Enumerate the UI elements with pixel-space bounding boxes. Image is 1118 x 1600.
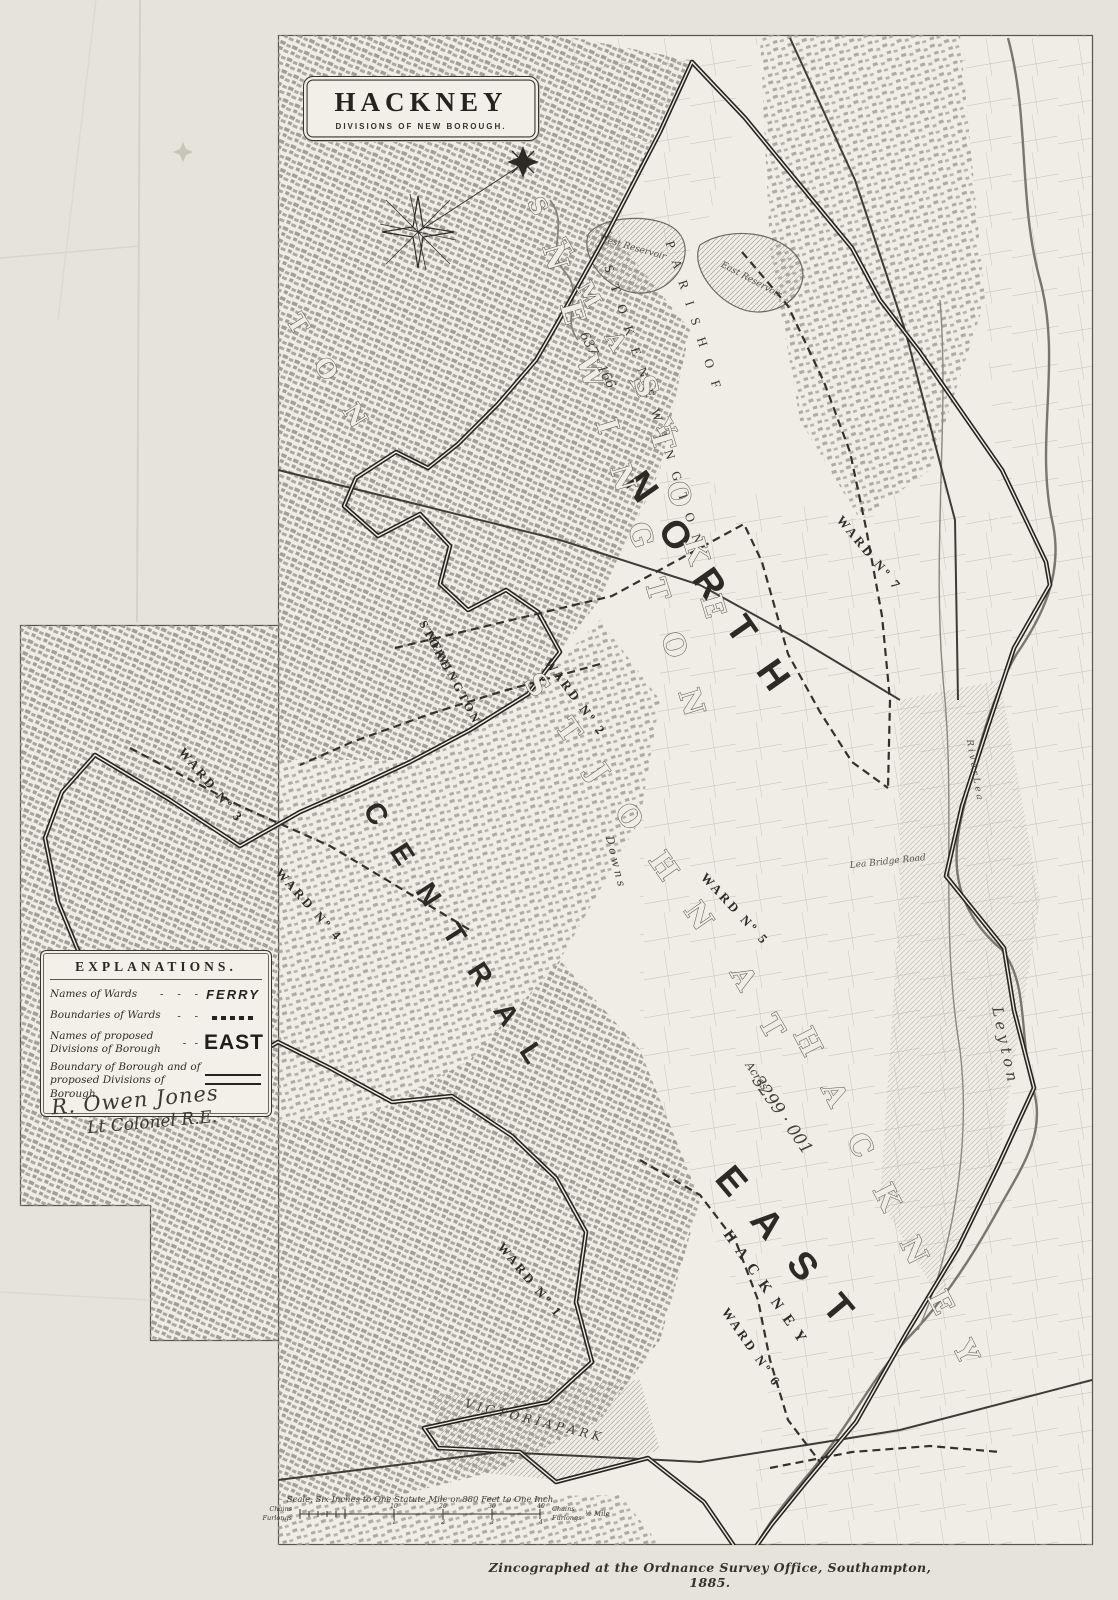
scale-bar-text: 2 — [440, 1519, 445, 1526]
map-title: HACKNEY — [312, 87, 530, 118]
dashed-line-sample — [212, 1016, 254, 1020]
imprint-line: Zincographed at the Ordnance Survey Offi… — [480, 1560, 940, 1590]
ward-name-sample: FERRY — [204, 987, 262, 1002]
scale-bar-text: ½ Mile — [585, 1510, 610, 1518]
legend-dots: - - - — [160, 989, 201, 1000]
legend-row-ward-names: Names of Wards - - - FERRY — [50, 987, 262, 1002]
north-star-icon — [509, 148, 537, 176]
title-cartouche: HACKNEY DIVISIONS OF NEW BOROUGH. — [303, 76, 539, 141]
scale-bar-text: 20 — [438, 1503, 447, 1510]
scale-bar-text: 10 — [390, 1503, 398, 1510]
legend-dots: - - — [183, 1038, 201, 1049]
scale-bar-text: 4 — [538, 1519, 543, 1526]
scale-bar-text: Scale, Six Inches to One Statute Mile or… — [287, 1495, 554, 1505]
map-subtitle: DIVISIONS OF NEW BOROUGH. — [312, 122, 530, 131]
hackney-map-canvas: Scale, Six Inches to One Statute Mile or… — [0, 0, 1118, 1600]
scale-bar-text: Furlongs — [551, 1514, 582, 1522]
map-sheet: Scale, Six Inches to One Statute Mile or… — [0, 0, 1118, 1600]
scale-bar-text: Chains — [552, 1505, 575, 1513]
legend-row-ward-boundaries: Boundaries of Wards - - — [50, 1007, 262, 1025]
legend-row-division-names: Names of proposed Divisions of Borough -… — [50, 1030, 262, 1056]
scale-bar-text: 30 — [488, 1503, 496, 1510]
division-name-sample: EAST — [204, 1031, 262, 1055]
scale-bar-text: 1 — [392, 1519, 396, 1526]
scale-bar-text: Chains — [269, 1505, 292, 1513]
explanations-heading: EXPLANATIONS. — [50, 959, 262, 980]
scale-bar-text: Furlongs — [262, 1514, 293, 1522]
scale-bar-text: 40 — [536, 1503, 545, 1510]
scale-bar-text: 3 — [490, 1519, 494, 1526]
legend-dots: - - — [177, 1011, 201, 1022]
